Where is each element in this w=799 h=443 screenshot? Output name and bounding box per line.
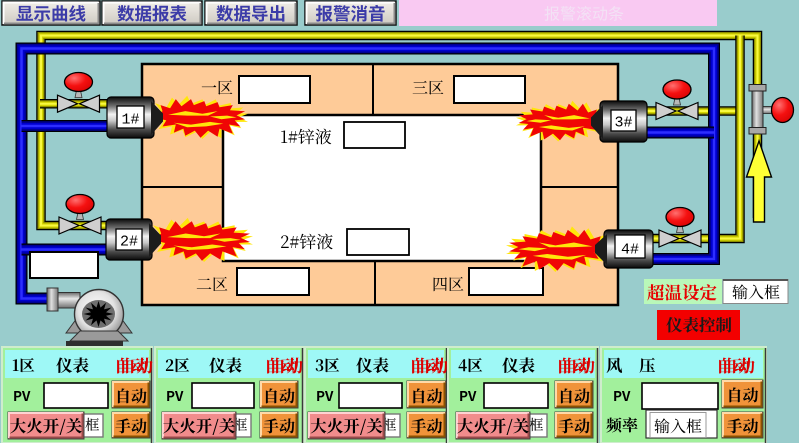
svg-text:3#: 3# — [614, 115, 632, 132]
svg-text:4#: 4# — [621, 242, 639, 259]
svg-text:2#: 2# — [120, 234, 138, 251]
svg-text:1#: 1# — [121, 112, 139, 129]
